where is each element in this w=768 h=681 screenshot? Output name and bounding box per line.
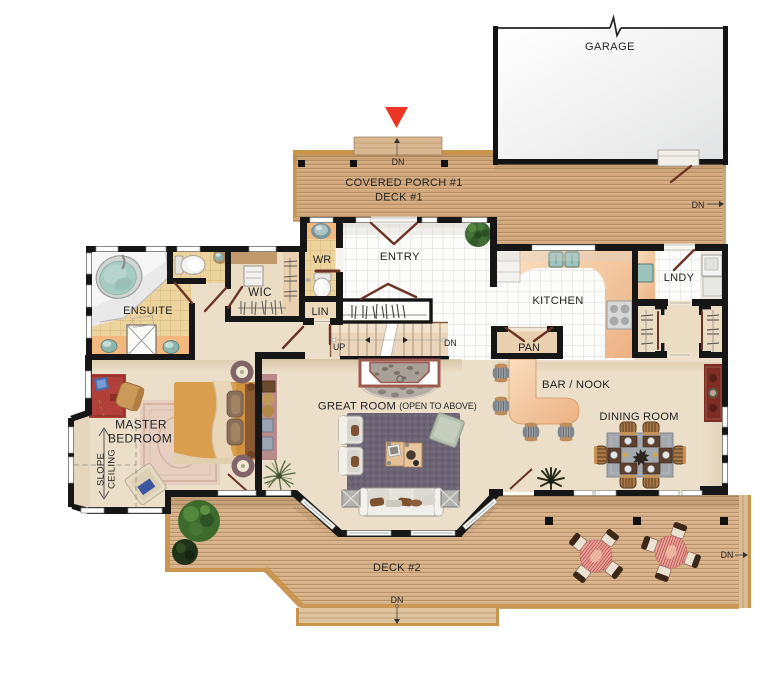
svg-text:GREAT ROOM: GREAT ROOM <box>318 401 396 413</box>
svg-text:DECK #1: DECK #1 <box>375 192 423 204</box>
svg-text:LNDY: LNDY <box>664 272 695 284</box>
svg-text:BAR / NOOK: BAR / NOOK <box>542 379 610 391</box>
svg-text:ENTRY: ENTRY <box>380 251 420 263</box>
svg-text:GARAGE: GARAGE <box>585 41 635 53</box>
svg-text:KITCHEN: KITCHEN <box>532 295 583 307</box>
svg-text:LIN: LIN <box>311 306 328 318</box>
svg-text:ENSUITE: ENSUITE <box>123 305 173 317</box>
svg-text:UP: UP <box>333 342 345 352</box>
svg-text:DN: DN <box>392 157 405 167</box>
svg-text:(OPEN TO ABOVE): (OPEN TO ABOVE) <box>399 401 476 411</box>
svg-text:MASTER: MASTER <box>115 418 167 432</box>
svg-text:COVERED PORCH #1: COVERED PORCH #1 <box>345 177 462 189</box>
svg-text:BEDROOM: BEDROOM <box>108 432 172 446</box>
svg-text:PAN: PAN <box>518 342 540 354</box>
svg-text:WR: WR <box>313 254 331 266</box>
svg-text:DN: DN <box>692 200 705 210</box>
svg-text:DN: DN <box>444 338 457 348</box>
svg-text:CEILING: CEILING <box>107 449 118 489</box>
svg-text:DN: DN <box>721 550 734 560</box>
svg-text:WIC: WIC <box>248 287 272 299</box>
svg-text:DINING ROOM: DINING ROOM <box>599 411 678 423</box>
svg-text:DN: DN <box>391 595 404 605</box>
svg-text:DECK #2: DECK #2 <box>373 562 421 574</box>
svg-text:SLOPE: SLOPE <box>96 453 107 486</box>
